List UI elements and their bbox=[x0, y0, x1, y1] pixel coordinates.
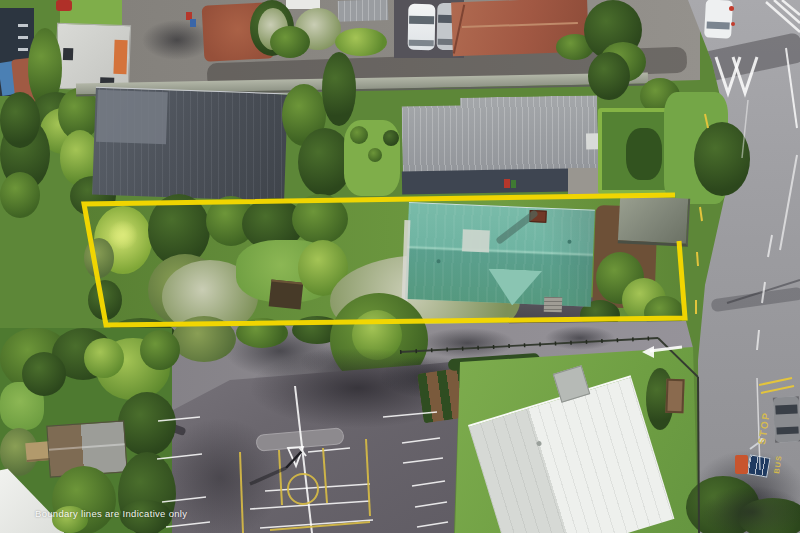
red-car bbox=[56, 0, 72, 11]
driveway-stain bbox=[142, 20, 212, 60]
house-steps bbox=[544, 297, 563, 313]
tree-canopy bbox=[22, 352, 66, 396]
shrub bbox=[335, 28, 387, 56]
teal-roof-house bbox=[405, 202, 595, 307]
garden-shed-small bbox=[269, 279, 304, 309]
bin-green bbox=[511, 180, 516, 188]
grey-roof-top-edge bbox=[338, 0, 389, 22]
windshield bbox=[706, 21, 729, 29]
tree-canopy bbox=[292, 194, 348, 244]
wheelie-bin-blue bbox=[190, 19, 196, 27]
attic-window bbox=[63, 48, 73, 60]
road-tree-shadow bbox=[700, 486, 800, 533]
palm-crown bbox=[108, 220, 138, 250]
parked-car-road bbox=[773, 396, 800, 442]
shed-ridge bbox=[49, 443, 125, 450]
ac-unit bbox=[586, 133, 598, 149]
roof-hip-shade bbox=[405, 203, 595, 307]
neighbour-house-dark-roof bbox=[92, 87, 288, 202]
road-cone bbox=[729, 6, 734, 11]
skylight bbox=[462, 229, 490, 252]
solar-speed-sign bbox=[746, 454, 770, 477]
hedge-garden bbox=[598, 108, 670, 194]
rear-window bbox=[409, 40, 434, 46]
tree-canopy bbox=[84, 238, 114, 278]
aerial-photo: STOP BUS Boundary lines are Indicative o… bbox=[0, 0, 800, 533]
road-shadow bbox=[701, 32, 800, 82]
roof-ridge bbox=[462, 22, 578, 28]
boundary-disclaimer: Boundary lines are Indicative only bbox=[35, 508, 187, 519]
bin-red bbox=[504, 179, 510, 188]
deck-band bbox=[402, 169, 570, 195]
road-cone bbox=[731, 22, 735, 26]
tree-canopy bbox=[0, 172, 40, 218]
chimney bbox=[529, 210, 546, 223]
tree-canopy bbox=[322, 52, 356, 126]
hedge bbox=[588, 52, 630, 100]
neighbour-house-light-roof bbox=[401, 95, 598, 176]
shrub bbox=[270, 26, 310, 58]
windshield bbox=[409, 16, 434, 24]
parked-white-car bbox=[408, 4, 436, 50]
orange-skylight bbox=[113, 40, 127, 74]
garden-bush bbox=[368, 148, 382, 162]
street-tree-shadow bbox=[420, 328, 515, 358]
main-road bbox=[683, 0, 800, 533]
garden-bush bbox=[383, 130, 399, 146]
roof-light-panel bbox=[96, 90, 168, 144]
orange-cart bbox=[735, 455, 748, 474]
tree-canopy bbox=[84, 338, 124, 378]
bus-shelter bbox=[665, 379, 684, 414]
roadside-trees bbox=[172, 316, 236, 362]
road-shadow bbox=[711, 287, 800, 313]
roof-hip-line bbox=[453, 4, 465, 53]
roof-ribs bbox=[401, 95, 598, 176]
garden-bush bbox=[350, 126, 368, 144]
roadside-trees bbox=[236, 318, 288, 348]
car-shade bbox=[773, 396, 800, 442]
tree-canopy bbox=[140, 330, 180, 370]
tree-canopy bbox=[0, 92, 40, 148]
street-tree-shadow bbox=[545, 326, 615, 350]
tree-canopy bbox=[118, 392, 176, 456]
white-van bbox=[704, 0, 733, 39]
white-roof-house bbox=[55, 23, 131, 92]
garden-interior bbox=[626, 128, 662, 180]
tree-canopy bbox=[88, 280, 122, 320]
garden-shed bbox=[618, 195, 690, 247]
verge-tree bbox=[694, 122, 750, 196]
